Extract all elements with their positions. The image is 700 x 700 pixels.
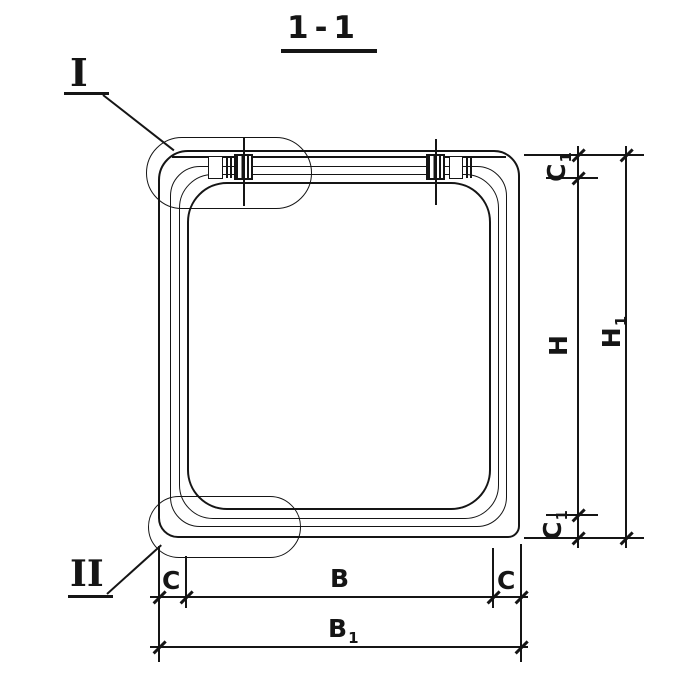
dim-label-b1-sub: 1	[348, 629, 358, 647]
dimension-line-h	[577, 146, 579, 548]
joint-right-rib-line	[470, 158, 472, 178]
dim-label-b1: B1	[328, 616, 358, 641]
dim-label-b: B	[330, 566, 349, 591]
section-title: 1-1	[287, 10, 361, 46]
joint-right-rib-line	[466, 158, 468, 178]
dim-label-b1-base: B	[328, 614, 347, 643]
dimension-line-cbc	[150, 596, 528, 598]
joint-right-secondary-box	[449, 156, 463, 179]
inner-opening-contour	[187, 182, 491, 510]
detail-marker-1: I	[70, 54, 88, 92]
dim-label-h1-sub: 1	[612, 316, 630, 326]
dim-label-c1-bottom-base: C	[538, 522, 567, 540]
drawing-sheet: 1-1 I II C B C B1	[0, 0, 700, 700]
dim-label-c1-top-sub: 1	[557, 152, 575, 162]
dim-label-c1-top-base: C	[542, 164, 571, 182]
detail-marker-2: II	[70, 556, 104, 592]
detail-marker-2-underline	[68, 595, 113, 598]
detail-balloon-2	[148, 496, 301, 558]
dim-label-c-right: C	[497, 568, 515, 593]
dimension-line-b1	[150, 646, 528, 648]
title-underline	[281, 49, 377, 53]
dim-label-h: H	[546, 335, 571, 356]
joint-right-centerline	[435, 139, 437, 205]
detail-leader-2	[106, 544, 162, 594]
dim-label-h1-base: H	[597, 327, 626, 348]
dim-label-c1-bottom-sub: 1	[553, 510, 571, 520]
detail-leader-1	[102, 94, 174, 151]
dim-label-c-left: C	[162, 568, 180, 593]
dim-label-c1-top: C1	[544, 153, 569, 182]
dim-label-h1: H1	[599, 317, 624, 348]
dim-label-c1-bottom: C1	[540, 511, 565, 540]
